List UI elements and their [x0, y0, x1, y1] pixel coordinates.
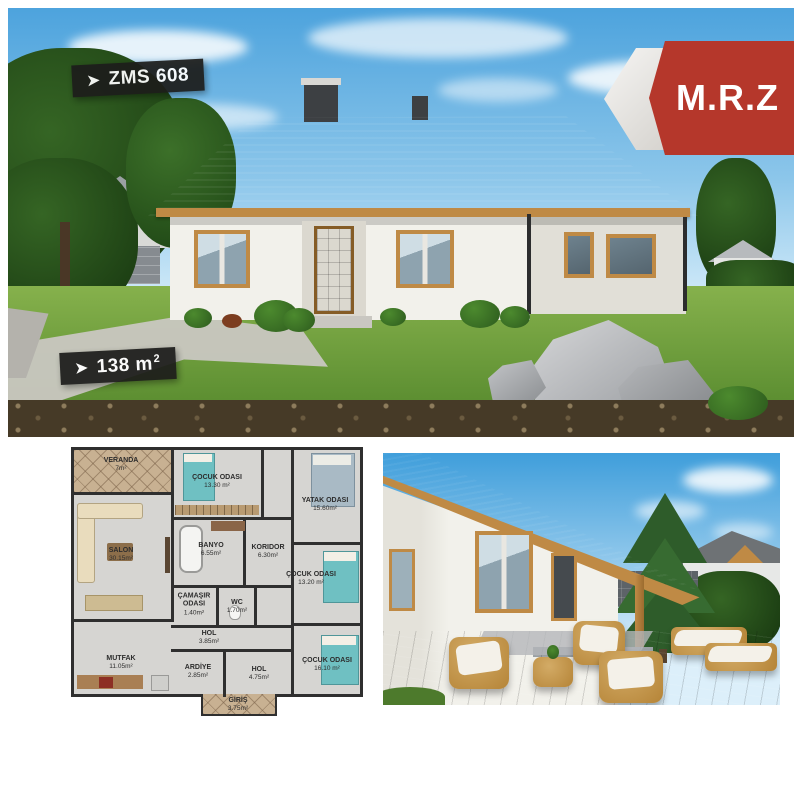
- area-superscript: 2: [153, 353, 160, 365]
- chimney: [304, 82, 338, 122]
- wall: [261, 450, 264, 520]
- exterior-photo-front: ➤ ZMS 608 ➤ 138 m2 M.R.Z: [8, 8, 794, 437]
- gutter-pipe: [683, 217, 687, 311]
- floor-plan: VERANDA 7m² ÇOCUK ODASI 13.30 m² YATAK O…: [71, 447, 363, 718]
- tv-unit-illustration: [165, 537, 170, 573]
- wall: [171, 517, 294, 520]
- back-window-wide: [475, 531, 533, 613]
- room-area: 13.30 m²: [192, 482, 242, 490]
- room-name: ARDİYE: [185, 664, 211, 671]
- cloud: [438, 78, 558, 102]
- room-area: 4.75m²: [249, 674, 269, 682]
- grass-corner: [383, 687, 445, 705]
- room-area: 30.15m²: [109, 555, 134, 563]
- room-label-hol-1: HOL 3.85m²: [199, 630, 219, 646]
- room-name: ÇOCUK ODASI: [302, 657, 352, 664]
- wall: [171, 585, 294, 588]
- room-area: 1.70m²: [227, 607, 247, 615]
- room-area: 3.85m²: [199, 638, 219, 646]
- chimney-cap: [301, 78, 341, 85]
- room-area: 6.30m²: [251, 552, 284, 560]
- cushion: [455, 640, 503, 676]
- room-name: HOL: [252, 666, 267, 673]
- gutter-pipe: [527, 214, 531, 314]
- room-name: VERANDA: [104, 457, 139, 464]
- room-label-banyo: BANYO 6.55m²: [198, 542, 223, 558]
- bush: [708, 386, 768, 420]
- room-label-cocuk-odasi-3: ÇOCUK ODASI 16.10 m²: [302, 657, 352, 673]
- eave-wood-trim: [156, 208, 690, 217]
- room-area: 2.85m²: [185, 672, 211, 680]
- front-window-right: [396, 230, 454, 288]
- wardrobe-illustration: [175, 505, 259, 515]
- stove-illustration: [99, 677, 113, 688]
- table-plant: [547, 645, 559, 659]
- room-name: HOL: [202, 630, 217, 637]
- room-name: ÇOCUK ODASI: [286, 571, 336, 578]
- wicker-armchair: [599, 651, 663, 703]
- wall: [171, 649, 291, 652]
- cushion: [706, 646, 773, 662]
- wall: [74, 619, 174, 622]
- brand-badge-label: M.R.Z: [664, 77, 779, 119]
- front-door: [314, 226, 354, 314]
- cushion: [607, 656, 655, 690]
- room-label-giris: GİRİŞ 3.75m²: [228, 697, 248, 713]
- sun-lounger: [705, 643, 777, 671]
- room-name: WC: [231, 599, 243, 606]
- room-label-hol-2: HOL 4.75m²: [249, 666, 269, 682]
- model-badge-label: ZMS 608: [108, 64, 190, 90]
- room-area: 16.10 m²: [302, 665, 352, 673]
- room-area: 7m²: [104, 465, 139, 473]
- room-name: MUTFAK: [106, 655, 135, 662]
- room-label-ardiye: ARDİYE 2.85m²: [185, 664, 211, 680]
- room-area: 1.40m²: [174, 609, 214, 617]
- room-label-veranda: VERANDA 7m²: [104, 457, 139, 473]
- roof-vent: [412, 96, 428, 120]
- bush: [380, 308, 406, 326]
- room-label-mutfak: MUTFAK 11.05m²: [106, 655, 135, 671]
- arrow-icon: ➤: [75, 360, 88, 376]
- wicker-armchair: [449, 637, 509, 689]
- area-badge-value: 138 m2: [96, 353, 161, 379]
- room-label-wc: WC 1.70m²: [227, 599, 247, 615]
- bush: [460, 300, 500, 328]
- room-area: 13.20 m²: [286, 579, 336, 587]
- wall: [216, 588, 219, 628]
- side-window-wide: [606, 234, 656, 278]
- room-area: 11.05m²: [106, 663, 135, 671]
- room-label-yatak-odasi: YATAK ODASI 15.60m²: [302, 497, 349, 513]
- room-label-salon: SALON 30.15m²: [109, 547, 134, 563]
- sink-counter-illustration: [211, 521, 245, 531]
- fridge-illustration: [151, 675, 169, 691]
- room-name: GİRİŞ: [228, 697, 247, 704]
- bush: [184, 308, 212, 328]
- pillow-illustration: [184, 454, 212, 462]
- room-area: 3.75m²: [228, 705, 248, 713]
- exterior-photo-back: [383, 453, 780, 705]
- brand-badge: M.R.Z: [649, 41, 794, 155]
- arrow-icon: ➤: [87, 73, 100, 89]
- sofa-illustration: [77, 503, 143, 519]
- red-shrub: [222, 314, 242, 328]
- room-label-camasir-odasi: ÇAMAŞIR ODASI 1.40m²: [174, 593, 214, 618]
- room-name: ÇAMAŞIR ODASI: [178, 593, 211, 608]
- room-name: SALON: [109, 547, 134, 554]
- room-name: YATAK ODASI: [302, 497, 349, 504]
- facade-shadow: [170, 217, 686, 225]
- room-area: 6.55m²: [198, 550, 223, 558]
- wall: [74, 492, 174, 495]
- cloud: [683, 467, 773, 493]
- wall: [254, 588, 257, 628]
- wall: [294, 542, 363, 545]
- side-window-small: [564, 232, 594, 278]
- area-badge: ➤ 138 m2: [59, 347, 176, 385]
- cloud: [308, 18, 568, 58]
- wicker-side-table: [533, 657, 573, 687]
- wall: [223, 652, 226, 697]
- back-window-left: [389, 549, 415, 611]
- cushion: [579, 624, 620, 654]
- room-name: KORIDOR: [251, 544, 284, 551]
- pillow-illustration: [313, 455, 351, 465]
- room-name: BANYO: [198, 542, 223, 549]
- bush: [283, 308, 315, 332]
- wall: [294, 623, 363, 626]
- room-area: 15.60m²: [302, 505, 349, 513]
- room-label-koridor: KORIDOR 6.30m²: [251, 544, 284, 560]
- pillow-illustration: [322, 636, 356, 645]
- wall: [171, 625, 294, 628]
- bush: [500, 306, 530, 328]
- room-label-cocuk-odasi-2: ÇOCUK ODASI 13.20 m²: [286, 571, 336, 587]
- mulch-bed: [8, 400, 794, 437]
- front-window-left: [194, 230, 250, 288]
- room-label-cocuk-odasi-1: ÇOCUK ODASI 13.30 m²: [192, 474, 242, 490]
- area-number: 138 m: [96, 353, 153, 377]
- back-door: [551, 553, 577, 621]
- dining-table-illustration: [85, 595, 143, 611]
- pillow-illustration: [324, 552, 356, 561]
- room-name: ÇOCUK ODASI: [192, 474, 242, 481]
